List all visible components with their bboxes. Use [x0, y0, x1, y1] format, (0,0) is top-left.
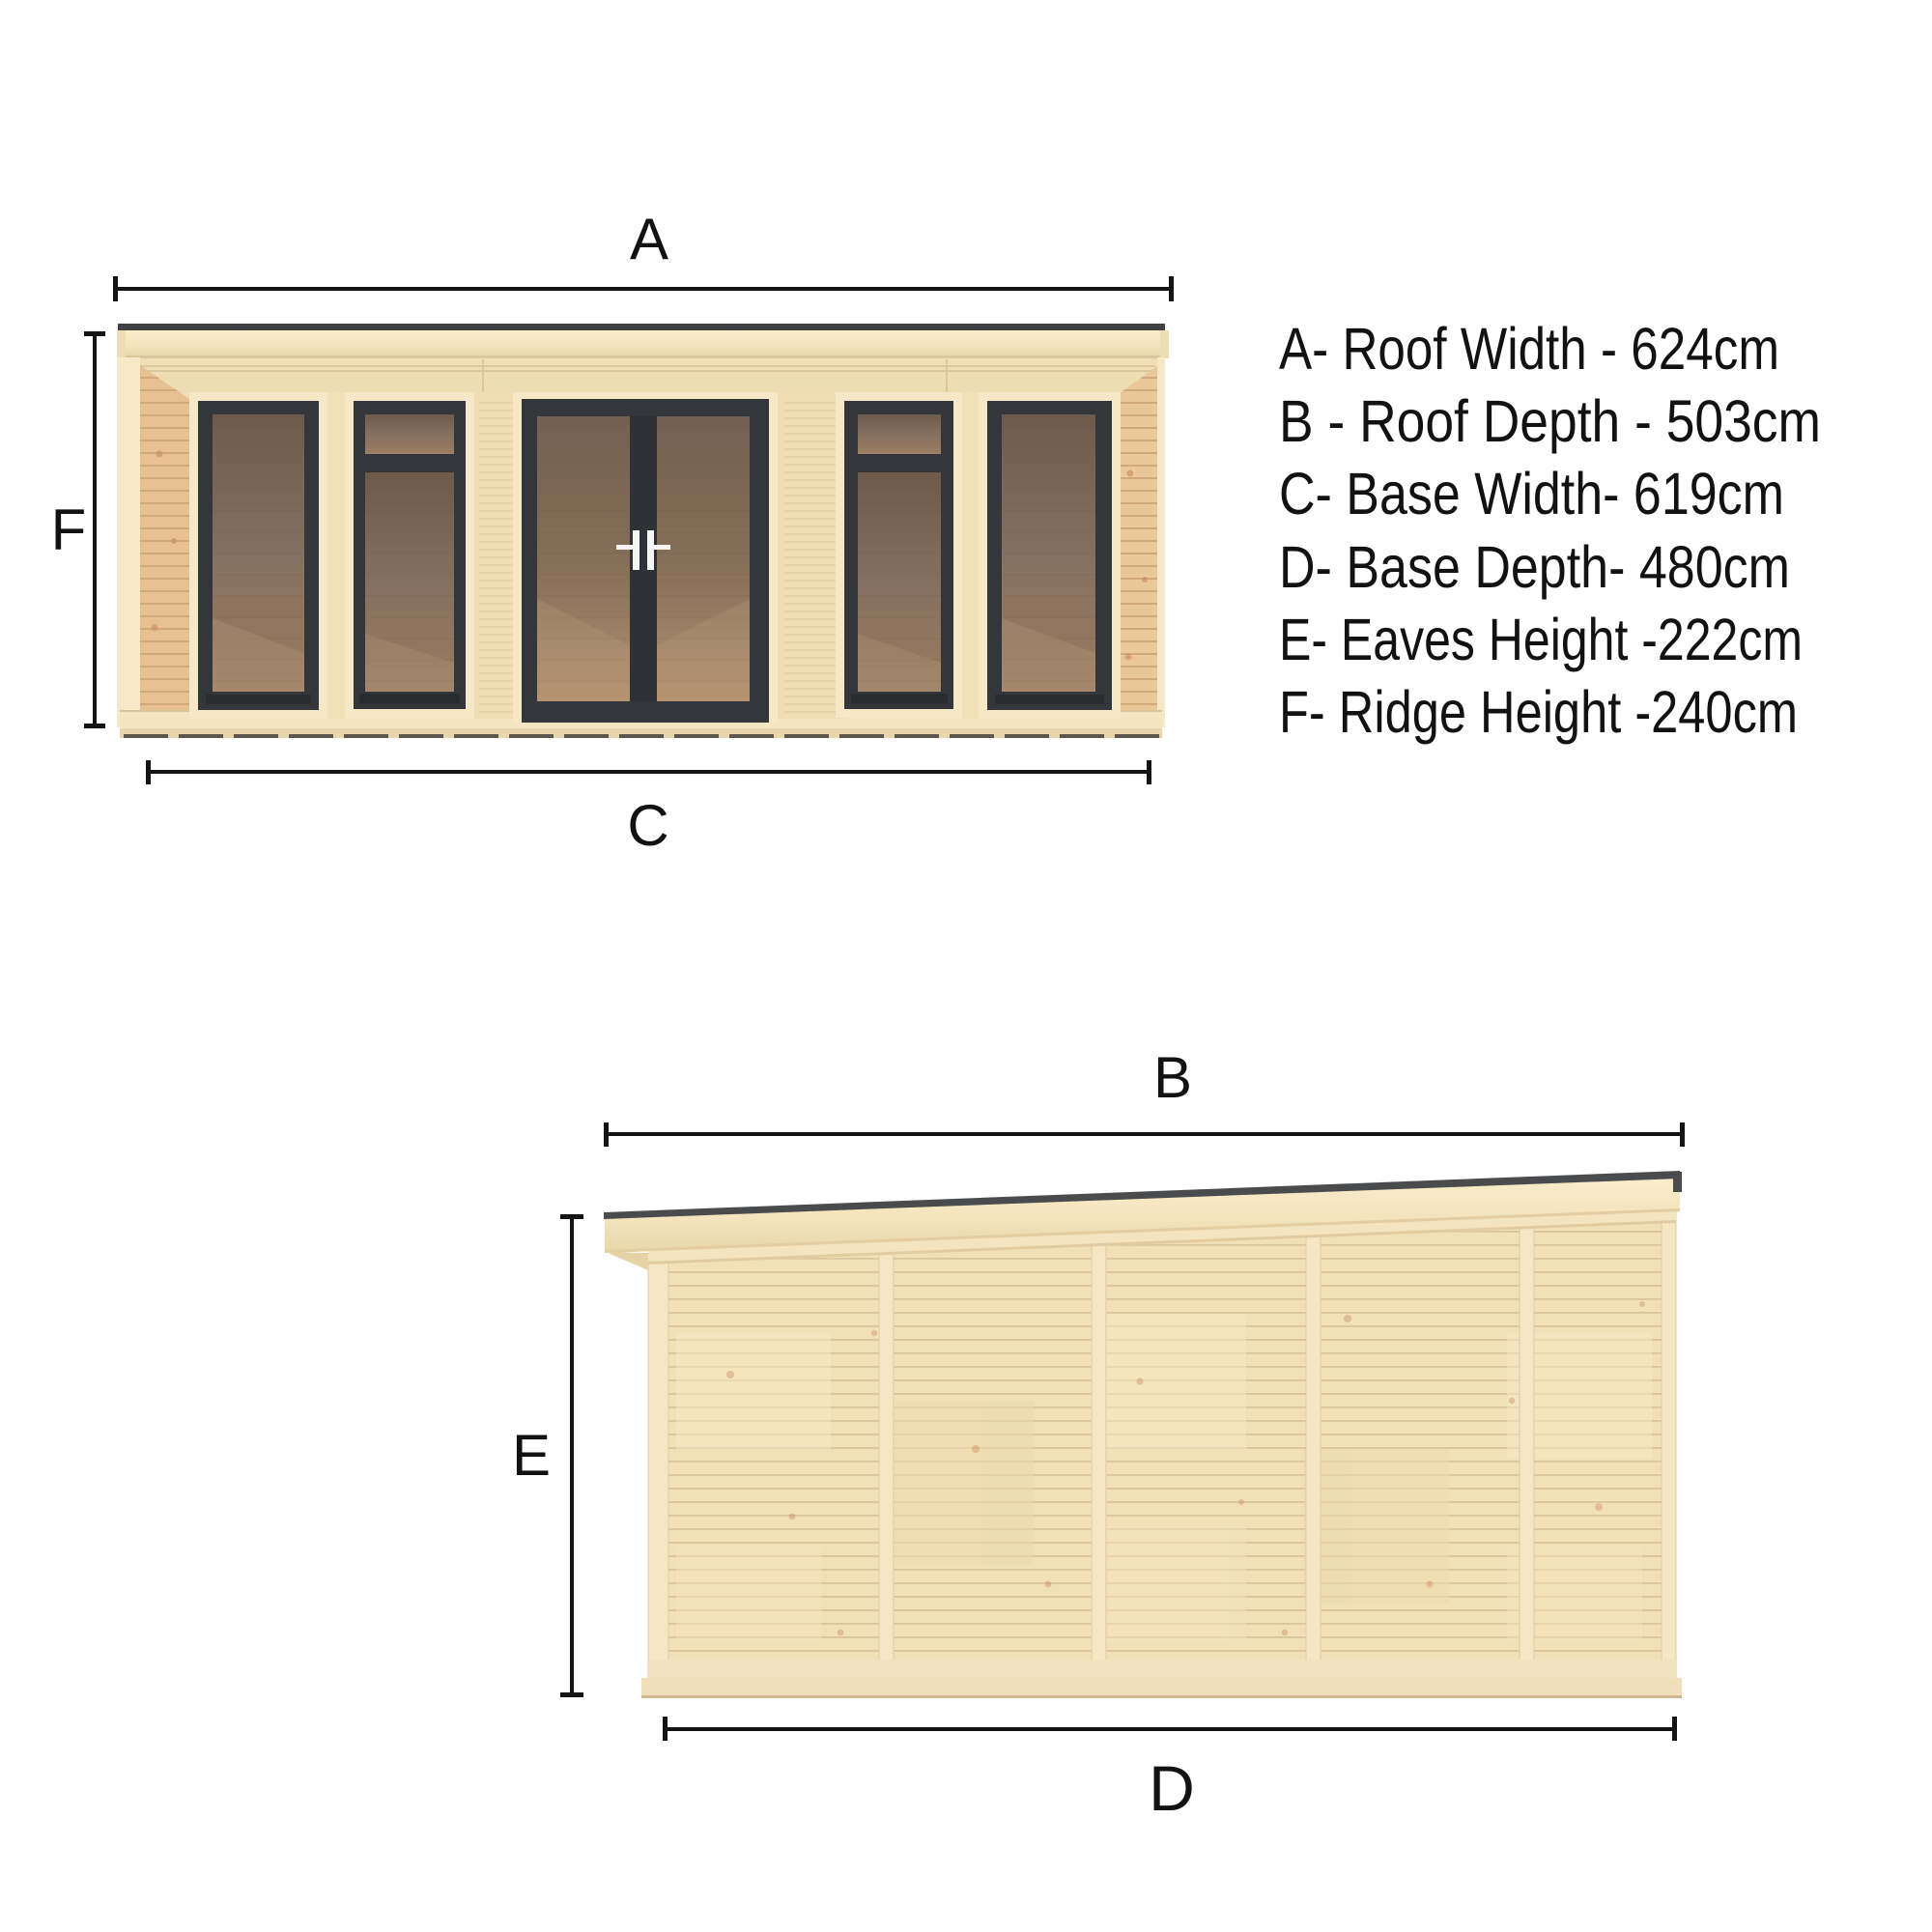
svg-text:A: A: [630, 207, 668, 271]
svg-text:E: E: [512, 1423, 551, 1488]
svg-text:C- Base Width- 619cm: C- Base Width- 619cm: [1279, 461, 1784, 526]
svg-text:B: B: [1153, 1045, 1192, 1110]
svg-text:F- Ridge Height -240cm: F- Ridge Height -240cm: [1279, 679, 1798, 745]
svg-text:F: F: [51, 497, 87, 562]
svg-text:E- Eaves Height -222cm: E- Eaves Height -222cm: [1279, 607, 1803, 672]
svg-text:D- Base Depth- 480cm: D- Base Depth- 480cm: [1279, 534, 1790, 600]
svg-text:A- Roof Width - 624cm: A- Roof Width - 624cm: [1279, 316, 1779, 382]
svg-text:C: C: [627, 793, 668, 858]
svg-text:D: D: [1149, 1752, 1195, 1824]
svg-text:B - Roof Depth - 503cm: B - Roof Depth - 503cm: [1279, 388, 1821, 454]
